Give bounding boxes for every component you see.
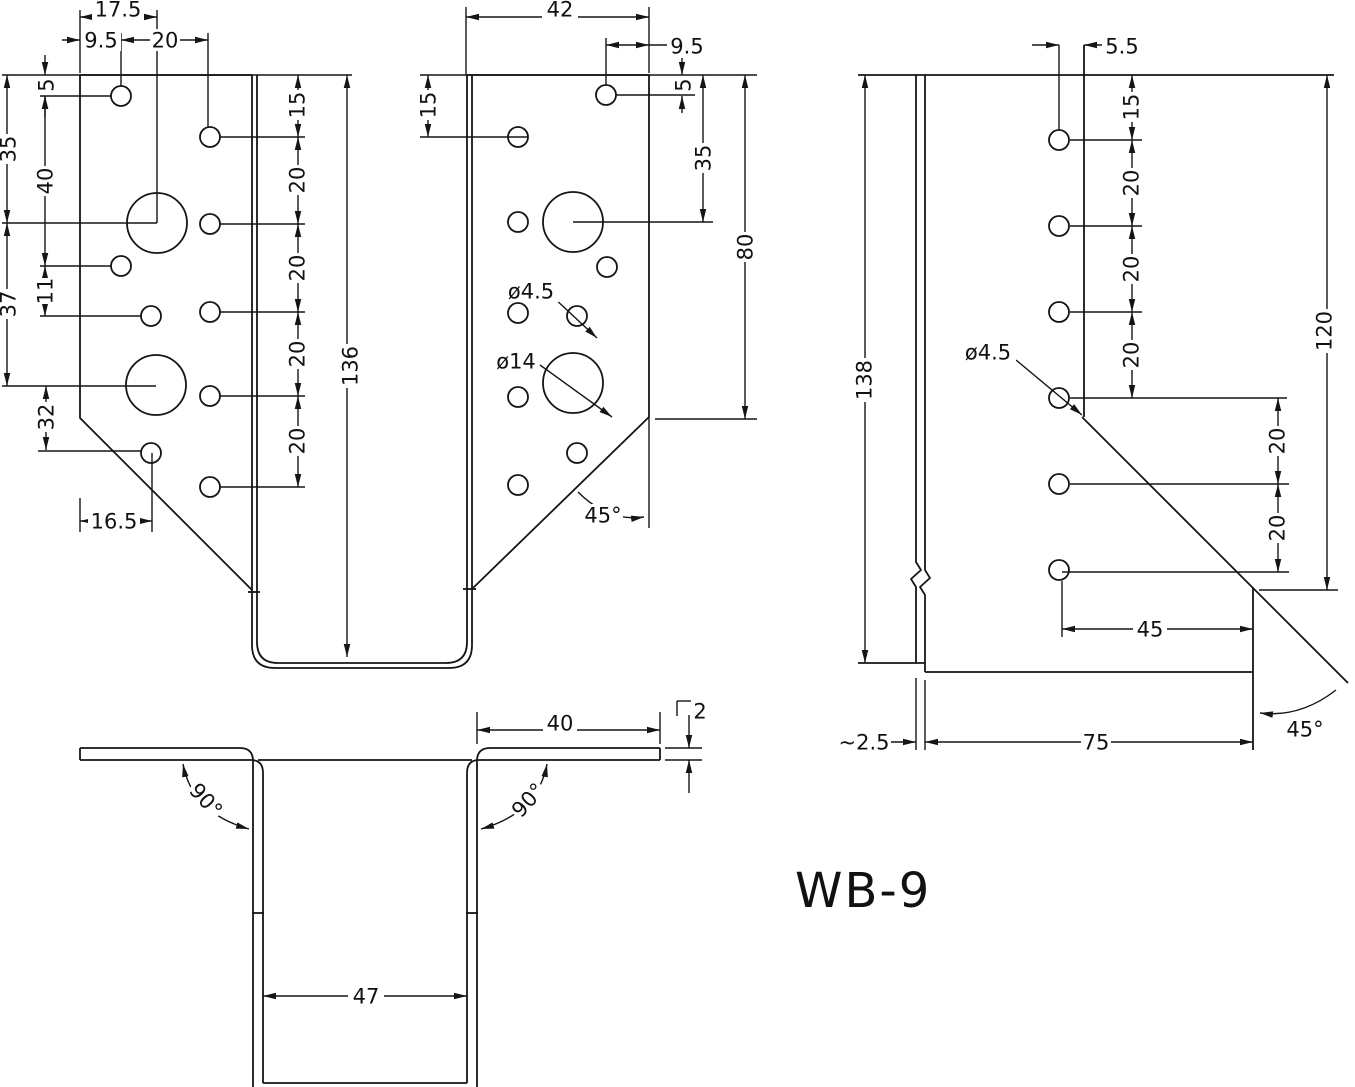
dim-136: 136 xyxy=(338,346,362,386)
dim-9-5-left: 9.5 xyxy=(84,28,117,52)
side-wall-holes xyxy=(1049,130,1069,580)
dim-angle-45-front: 45° xyxy=(584,503,621,527)
dim-32: 32 xyxy=(34,404,58,431)
dim-2-thickness: 2 xyxy=(693,699,706,723)
dim-20-side-4: 20 xyxy=(1265,428,1289,455)
dim-80: 80 xyxy=(733,234,757,261)
dim-15-side: 15 xyxy=(1119,94,1143,121)
dim-5-5: 5.5 xyxy=(1105,34,1138,58)
front-view-labels: 17.5 9.5 20 5 40 35 37 11 32 16.5 15 20 … xyxy=(0,0,757,533)
dim-11: 11 xyxy=(33,278,57,305)
dim-20-side-3: 20 xyxy=(1119,342,1143,369)
dim-20-side-5: 20 xyxy=(1265,515,1289,542)
dim-5-left: 5 xyxy=(34,78,58,91)
callout-dia-4-5: ø4.5 xyxy=(508,279,554,303)
dim-37: 37 xyxy=(0,291,20,318)
dim-angle-90-left: 90° xyxy=(184,778,227,822)
cad-drawing: 17.5 9.5 20 5 40 35 37 11 32 16.5 15 20 … xyxy=(0,0,1355,1087)
dim-47: 47 xyxy=(353,984,380,1008)
dim-20-side-2: 20 xyxy=(1119,256,1143,283)
dim-35-right: 35 xyxy=(691,145,715,172)
dim-20-chain-2: 20 xyxy=(285,255,309,282)
front-left-plate-holes xyxy=(111,86,220,497)
side-view xyxy=(858,45,1348,750)
side-view-labels: 5.5 15 20 20 20 ø4.5 20 20 138 120 45 ~2… xyxy=(837,34,1336,754)
dim-angle-45-side: 45° xyxy=(1286,717,1323,741)
callout-dia-4-5-side: ø4.5 xyxy=(965,340,1011,364)
dim-20-chain-4: 20 xyxy=(285,428,309,455)
dim-15-left: 15 xyxy=(285,92,309,119)
dim-45-side: 45 xyxy=(1137,617,1164,641)
callout-dia-14: ø14 xyxy=(496,349,536,373)
dim-20-chain-3: 20 xyxy=(285,341,309,368)
dim-120: 120 xyxy=(1312,311,1336,351)
dim-42: 42 xyxy=(547,0,574,21)
dim-35-left: 35 xyxy=(0,136,20,163)
dim-20-side-1: 20 xyxy=(1119,170,1143,197)
drawing-sheet: 17.5 9.5 20 5 40 35 37 11 32 16.5 15 20 … xyxy=(0,0,1355,1087)
dim-15-right: 15 xyxy=(416,92,440,119)
dim-2-5-approx: ~2.5 xyxy=(839,730,890,754)
dim-40-flange: 40 xyxy=(547,711,574,735)
part-code-label: WB-9 xyxy=(795,863,931,919)
dim-40: 40 xyxy=(33,168,57,195)
dim-20-chain-1: 20 xyxy=(285,167,309,194)
dim-9-5-right: 9.5 xyxy=(670,34,703,58)
front-view xyxy=(2,7,757,668)
dim-138: 138 xyxy=(852,360,876,400)
dim-17-5: 17.5 xyxy=(95,0,142,21)
dim-5-right: 5 xyxy=(671,78,695,91)
section-view xyxy=(80,701,702,1087)
dim-75: 75 xyxy=(1083,730,1110,754)
dim-16-5: 16.5 xyxy=(91,509,138,533)
dim-20-top: 20 xyxy=(152,28,179,52)
